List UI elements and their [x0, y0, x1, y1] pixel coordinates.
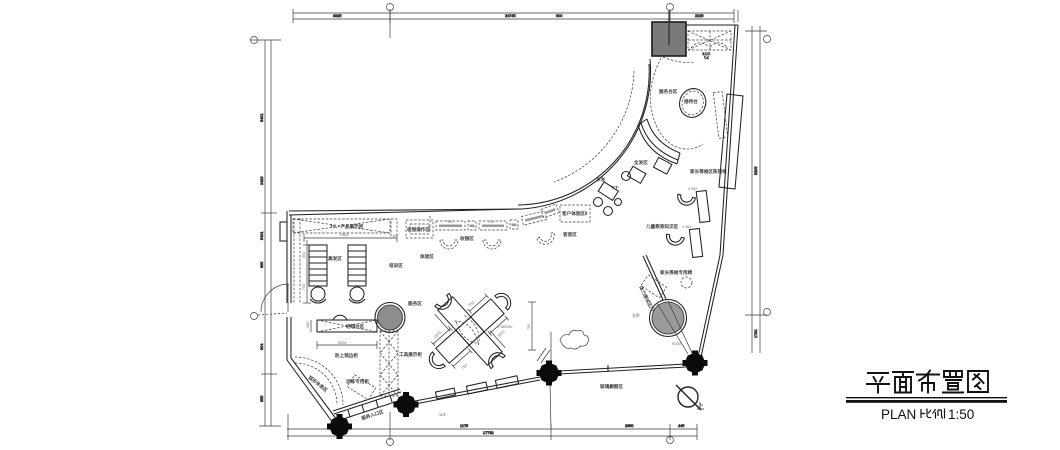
- svg-text:R·M520c: R·M520c: [497, 325, 513, 329]
- svg-text:收银操作区: 收银操作区: [407, 226, 430, 233]
- svg-text:服务台区: 服务台区: [659, 88, 678, 95]
- svg-text:5401: 5401: [260, 114, 264, 122]
- svg-text:2426: 2426: [260, 177, 264, 185]
- svg-text:培训区: 培训区: [389, 262, 403, 269]
- svg-text:经理台区: 经理台区: [346, 323, 365, 330]
- svg-text:服务区: 服务区: [408, 300, 422, 307]
- svg-text:防上锁边柜: 防上锁边柜: [335, 352, 358, 359]
- svg-text:收银区: 收银区: [460, 235, 474, 242]
- svg-text:家长等候区陈列柜: 家长等候区陈列柜: [690, 168, 727, 175]
- svg-text:700: 700: [488, 220, 494, 224]
- svg-text:2963: 2963: [340, 233, 348, 237]
- svg-text:体验区: 体验区: [420, 253, 434, 260]
- svg-text:高发区: 高发区: [328, 255, 342, 262]
- svg-text:训练专用柜: 训练专用柜: [346, 378, 369, 385]
- svg-text:24745: 24745: [505, 14, 516, 18]
- svg-text:9205: 9205: [754, 167, 758, 175]
- svg-text:沙发: 沙发: [596, 176, 606, 183]
- svg-text:78③: 78③: [438, 413, 446, 417]
- svg-text:4.462: 4.462: [682, 225, 692, 229]
- svg-text:4.362: 4.362: [688, 187, 698, 191]
- svg-text:445: 445: [678, 424, 684, 428]
- svg-text:1:50: 1:50: [948, 407, 974, 422]
- svg-text:名称: 名称: [632, 313, 640, 318]
- svg-text:工具展示柜: 工具展示柜: [399, 351, 422, 358]
- svg-text:400: 400: [302, 252, 306, 258]
- svg-text:PLAN: PLAN: [881, 407, 916, 422]
- svg-text:750: 750: [527, 324, 531, 330]
- svg-text:955: 955: [260, 396, 264, 402]
- svg-text:全发区: 全发区: [633, 159, 648, 166]
- svg-text:儿童教育知识区: 儿童教育知识区: [645, 223, 679, 230]
- svg-text:3825: 3825: [333, 14, 341, 18]
- svg-text:2650: 2650: [625, 424, 633, 428]
- svg-text:2225: 2225: [695, 14, 703, 18]
- svg-text:家长等候专用椅: 家长等候专用椅: [660, 269, 693, 276]
- svg-text:玻璃橱窗区: 玻璃橱窗区: [600, 383, 623, 390]
- svg-text:D4: D4: [704, 56, 709, 60]
- svg-text:700: 700: [446, 220, 452, 224]
- svg-text:17732: 17732: [483, 431, 494, 435]
- svg-text:960: 960: [260, 262, 264, 268]
- svg-text:接待台: 接待台: [684, 98, 698, 105]
- svg-text:5401: 5401: [260, 232, 264, 240]
- svg-text:450: 450: [306, 322, 310, 328]
- svg-text:XT·: XT·: [612, 185, 619, 190]
- svg-text:TV、产品展示柜: TV、产品展示柜: [330, 223, 364, 230]
- svg-text:904: 904: [260, 344, 264, 350]
- svg-text:客室区: 客室区: [562, 231, 577, 238]
- svg-text:1780: 1780: [754, 330, 758, 338]
- svg-text:1175: 1175: [460, 424, 468, 428]
- svg-text:客户体验区Ⅱ: 客户体验区Ⅱ: [561, 210, 588, 217]
- svg-text:2000: 2000: [338, 341, 346, 345]
- svg-text:750: 750: [302, 284, 306, 290]
- svg-text:900: 900: [556, 14, 562, 18]
- svg-text:R250: R250: [672, 342, 681, 346]
